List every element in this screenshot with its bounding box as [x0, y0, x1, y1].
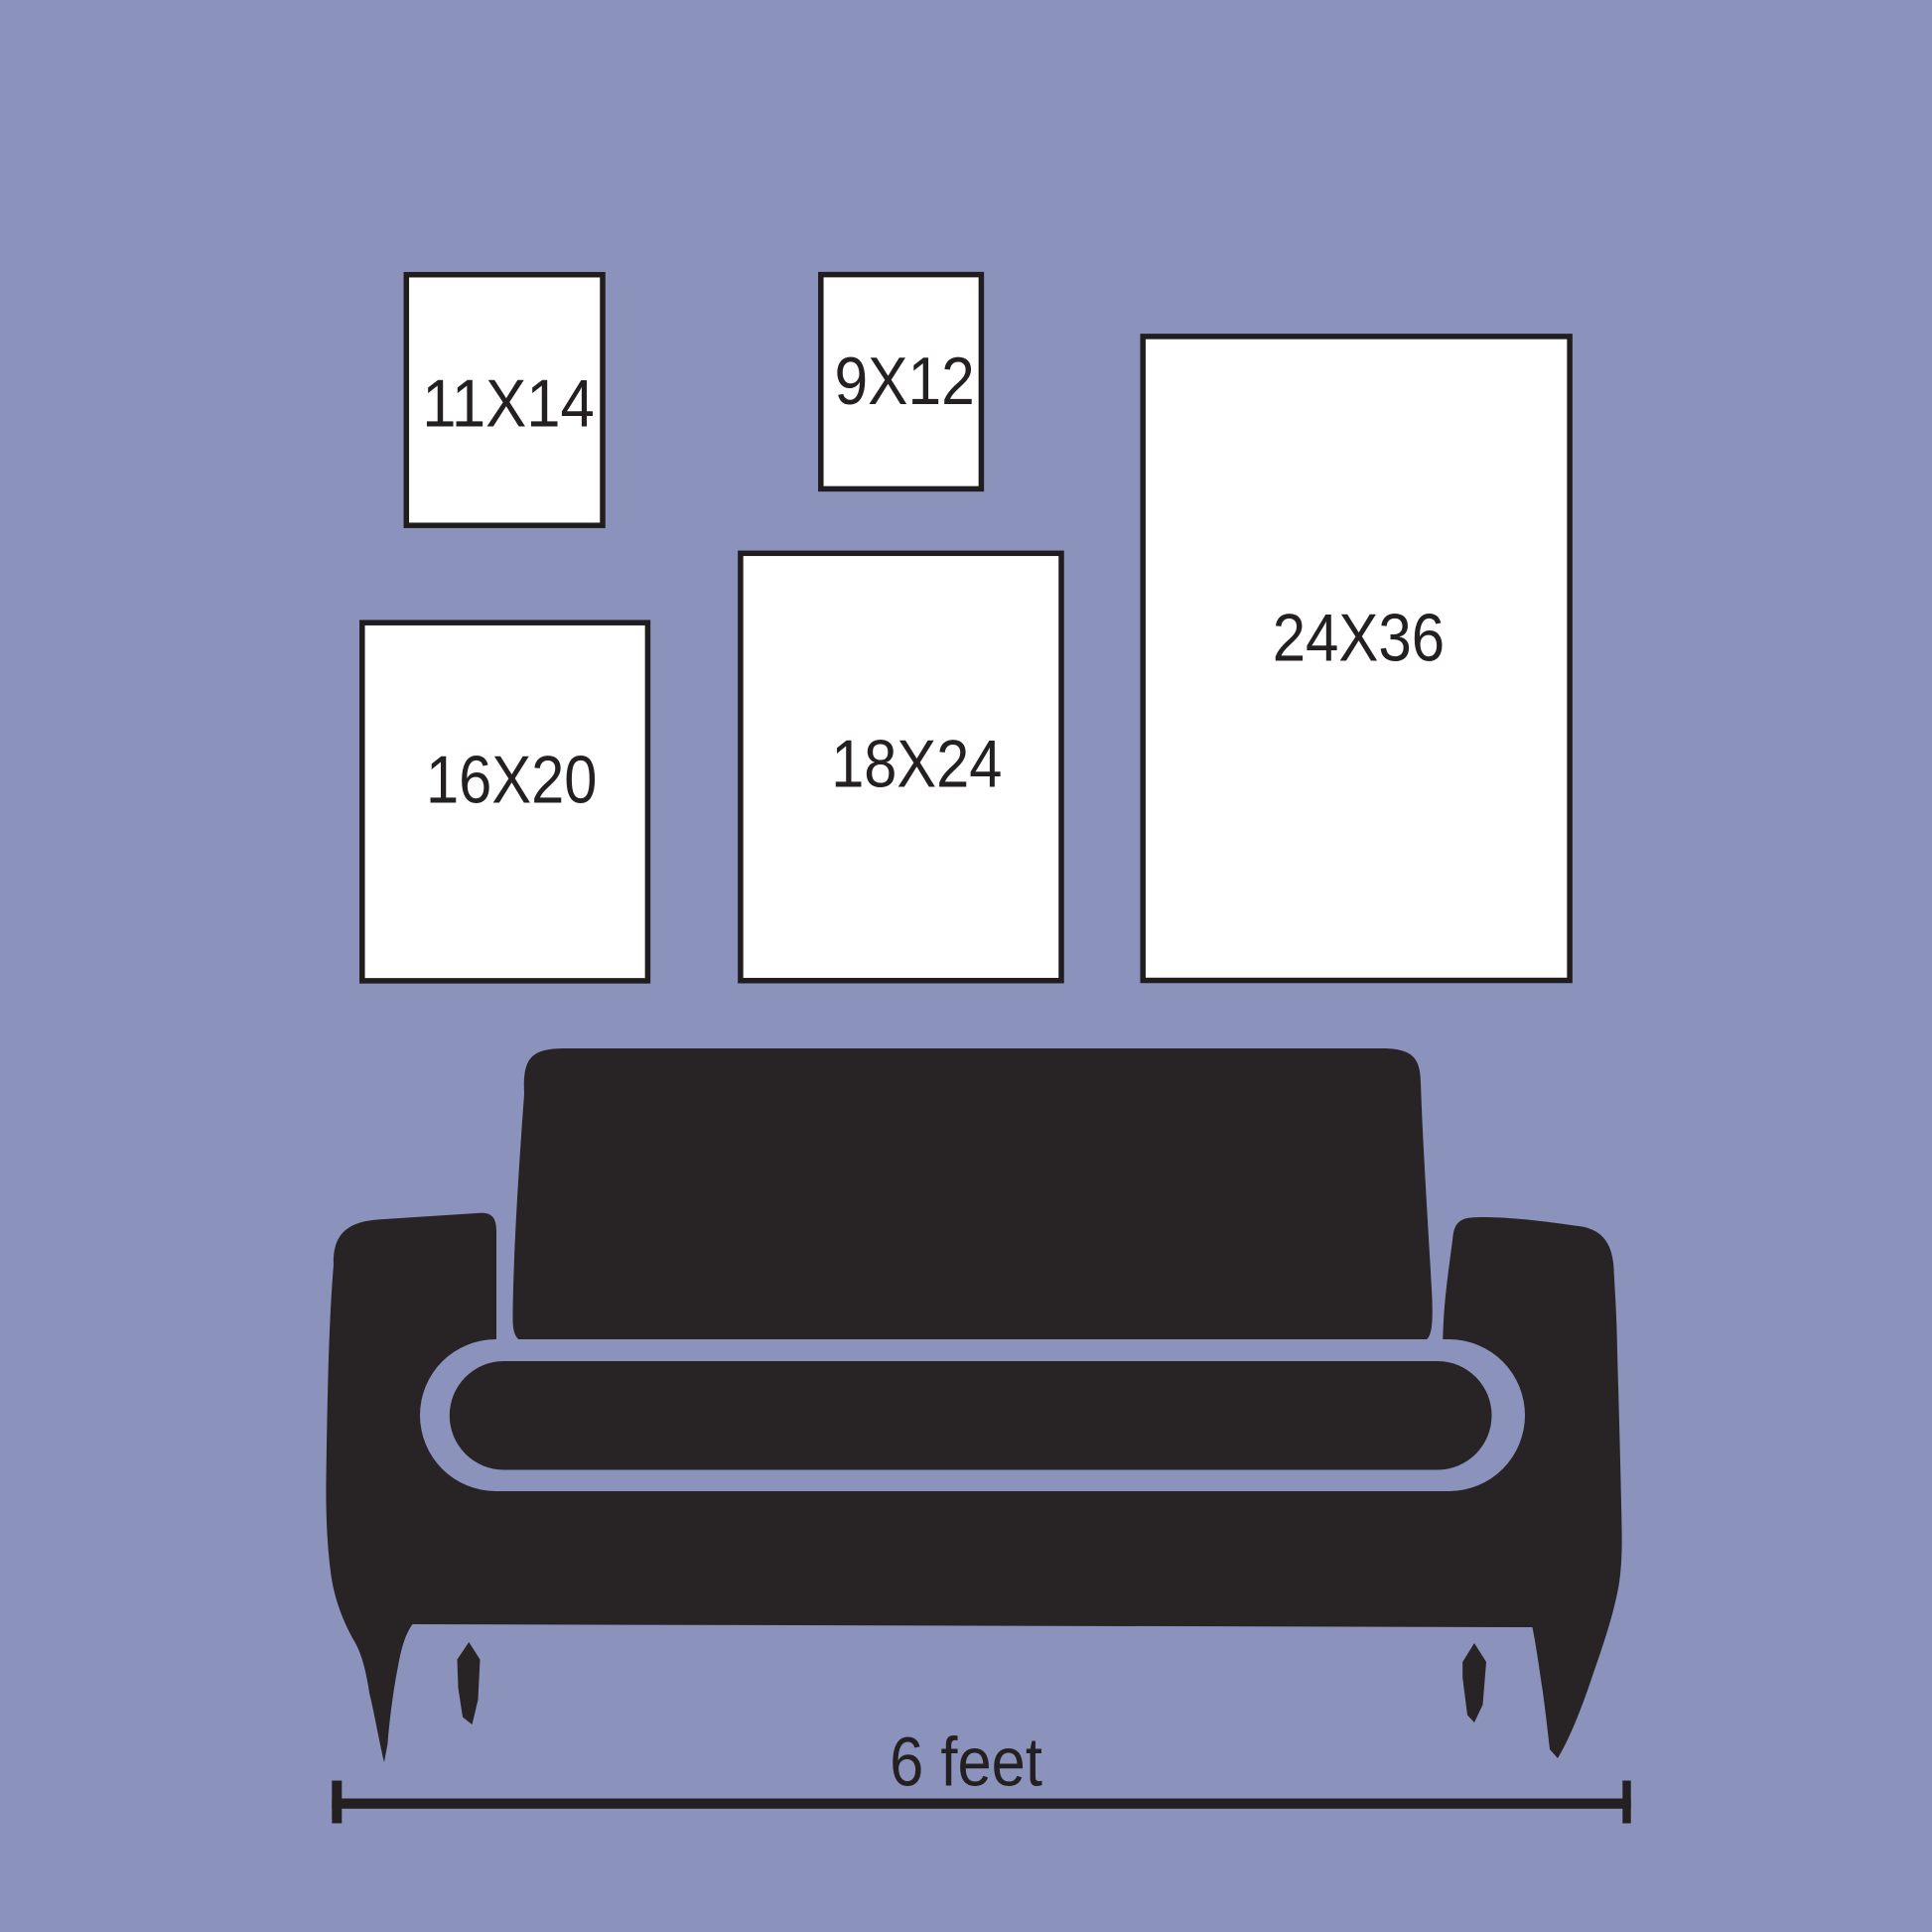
svg-text:6 feet: 6 feet: [890, 1723, 1042, 1800]
svg-text:24X36: 24X36: [1273, 601, 1445, 676]
svg-text:18X24: 18X24: [831, 727, 1002, 802]
svg-text:16X20: 16X20: [426, 743, 597, 818]
svg-text:9X12: 9X12: [835, 344, 975, 419]
svg-text:11X14: 11X14: [422, 366, 595, 442]
